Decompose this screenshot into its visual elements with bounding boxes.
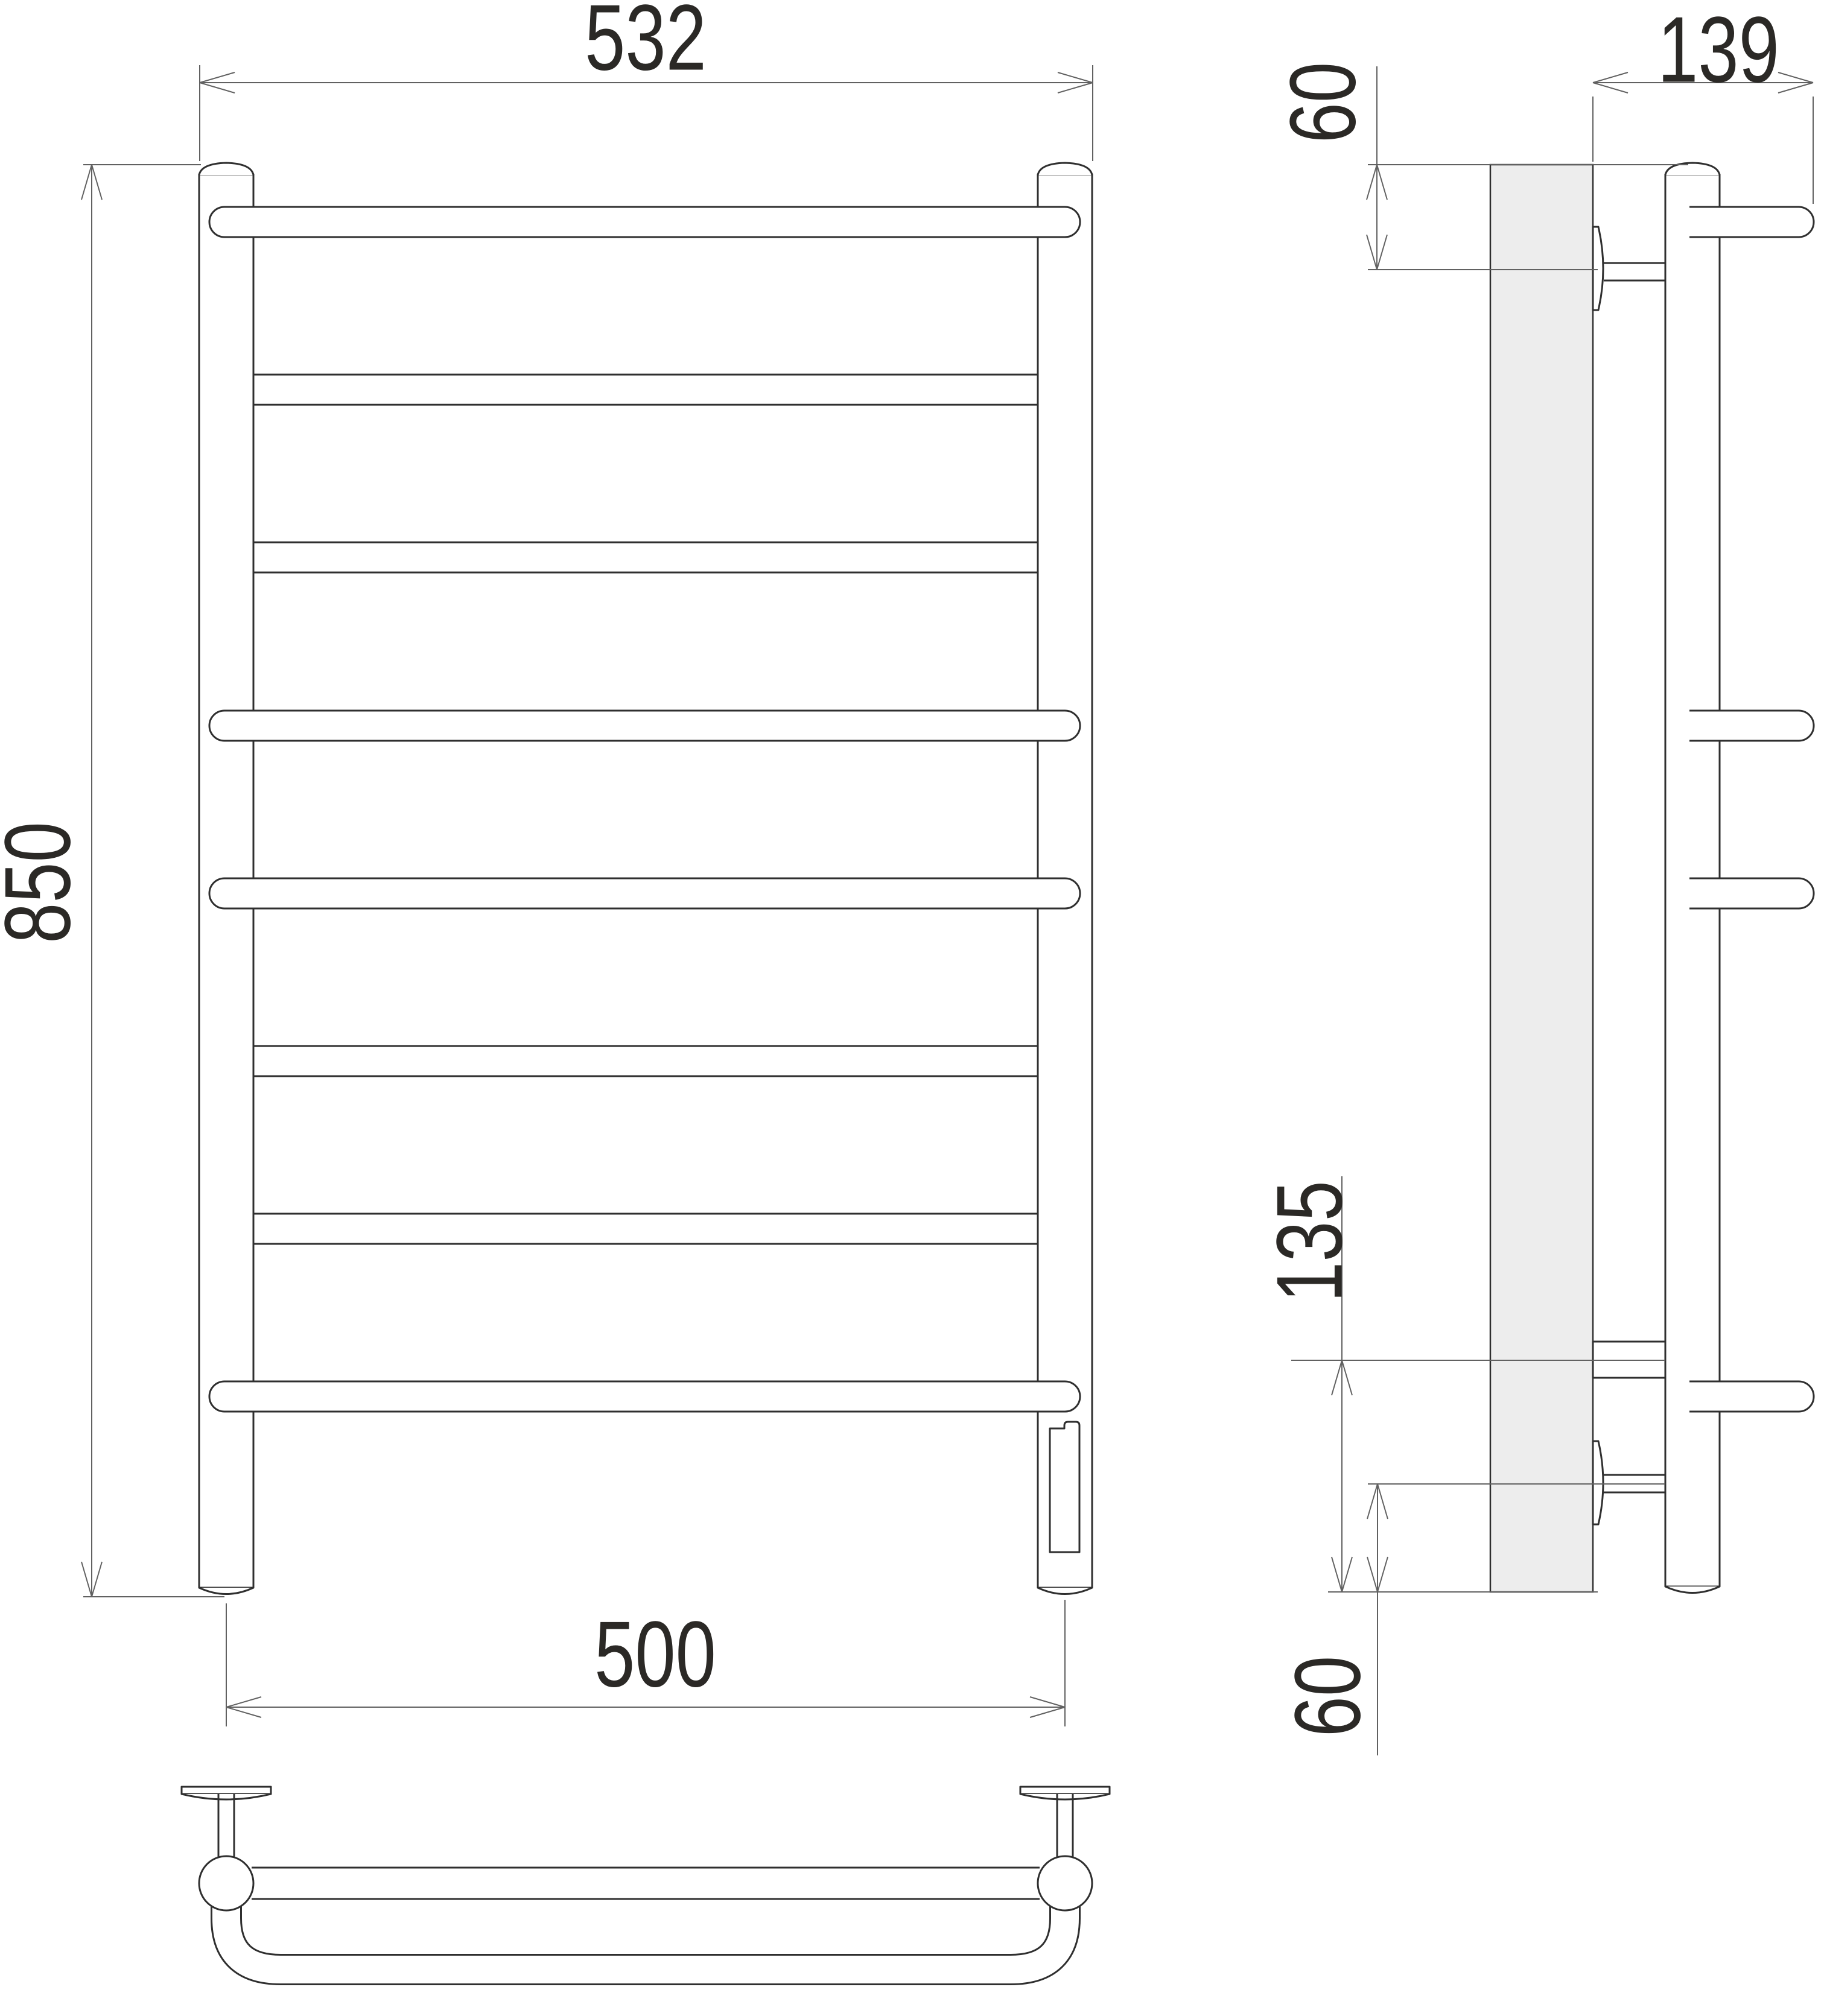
dim-label-connection-span: 135 — [1263, 1181, 1356, 1302]
front-right-post-top-cap — [1038, 163, 1092, 175]
side-view — [1490, 163, 1814, 1593]
front-left-post-top-cap — [199, 163, 253, 175]
side-rung-5-end — [1689, 878, 1814, 908]
top-left-flange — [182, 1787, 271, 1794]
front-rung-8 — [209, 1381, 1080, 1412]
front-rung-7 — [253, 1214, 1038, 1244]
top-left-stem — [218, 1794, 234, 1858]
dim-label-top-offset: 60 — [1276, 62, 1370, 143]
top-left-flange-arc — [182, 1794, 271, 1799]
front-left-post-bottom-cap — [199, 1588, 253, 1594]
top-straight-rung — [252, 1868, 1040, 1899]
side-post-bottom-cap — [1665, 1586, 1720, 1593]
top-right-flange-arc — [1020, 1794, 1110, 1799]
dim-label-bottom-offset: 60 — [1281, 1656, 1374, 1737]
front-rung-3 — [253, 542, 1038, 572]
top-right-flange — [1020, 1787, 1110, 1794]
side-wall-panel — [1490, 165, 1593, 1592]
top-right-post-circle — [1038, 1856, 1092, 1910]
side-rung-4-end — [1689, 711, 1814, 741]
front-view — [199, 163, 1092, 1594]
side-rung-8-end — [1689, 1381, 1814, 1412]
dim-label-top-width: 532 — [585, 0, 707, 84]
top-right-stem — [1057, 1794, 1073, 1858]
towel-rail-drawing — [0, 0, 1824, 2016]
side-top-bracket-flange — [1593, 227, 1603, 310]
front-rung-4 — [209, 711, 1080, 741]
side-bottom-bracket-flange — [1593, 1441, 1603, 1524]
front-rung-5 — [209, 878, 1080, 908]
dim-label-depth: 139 — [1657, 3, 1779, 97]
side-top-bracket-stem — [1604, 263, 1667, 281]
top-view — [182, 1787, 1110, 1970]
dim-label-height: 850 — [0, 822, 84, 943]
front-right-post-bottom-cap — [1038, 1588, 1092, 1594]
dim-label-bottom-width: 500 — [594, 1608, 716, 1701]
top-left-post-circle — [199, 1856, 253, 1910]
side-rung-1-end — [1689, 207, 1814, 237]
front-rung-2 — [253, 375, 1038, 405]
front-rung-6 — [253, 1046, 1038, 1076]
top-bowed-rung-fill — [226, 1891, 1065, 1970]
heating-element — [1050, 1422, 1079, 1552]
technical-drawing-canvas: 532 139 60 850 135 60 500 — [0, 0, 1824, 2016]
front-rung-1 — [209, 207, 1080, 237]
